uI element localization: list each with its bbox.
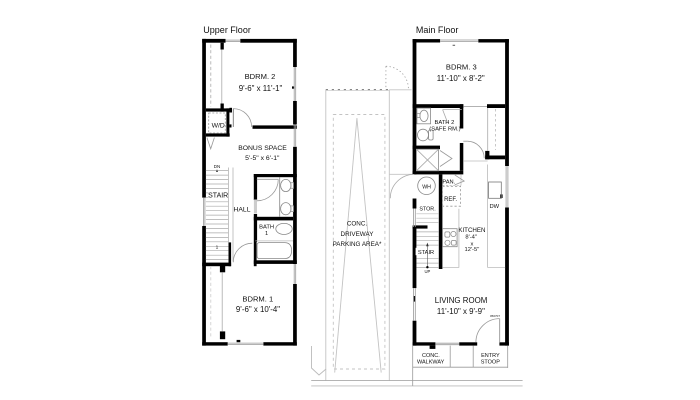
svg-text:W/D: W/D (212, 122, 225, 129)
svg-text:CONC.: CONC. (422, 353, 440, 359)
svg-text:DN: DN (214, 164, 221, 169)
svg-text:050707: 050707 (490, 314, 500, 318)
svg-text:Upper Floor: Upper Floor (203, 25, 251, 35)
svg-text:DRIVEWAY: DRIVEWAY (341, 231, 375, 238)
svg-text:PARKING AREA*: PARKING AREA* (333, 241, 382, 248)
svg-text:LIVING ROOM: LIVING ROOM (435, 296, 488, 305)
svg-text:REF.: REF. (444, 197, 457, 203)
svg-text:BATH 2: BATH 2 (434, 120, 454, 126)
svg-text:HALL: HALL (233, 207, 250, 214)
svg-text:PAN.: PAN. (442, 179, 455, 185)
svg-text:1: 1 (265, 231, 268, 237)
svg-text:11'-10" x 9'-9": 11'-10" x 9'-9" (437, 307, 485, 316)
svg-text:ENTRY: ENTRY (481, 353, 500, 359)
svg-text:BONUS SPACE: BONUS SPACE (238, 145, 287, 152)
svg-text:11'-10" x 8'-2": 11'-10" x 8'-2" (437, 74, 485, 83)
svg-text:9'-6" x 10'-4": 9'-6" x 10'-4" (236, 305, 280, 314)
svg-text:UP: UP (424, 269, 430, 274)
svg-text:STAIR: STAIR (418, 250, 434, 256)
svg-text:BDRM. 1: BDRM. 1 (242, 294, 273, 303)
svg-text:DW: DW (489, 204, 499, 210)
svg-text:8'-4": 8'-4" (465, 235, 477, 241)
svg-text:WALKWAY: WALKWAY (417, 360, 445, 366)
svg-text:STOOP: STOOP (481, 360, 500, 366)
svg-text:CONC.: CONC. (347, 221, 368, 228)
svg-text:BDRM. 2: BDRM. 2 (245, 72, 276, 81)
svg-text:9'-6" x 11'-1": 9'-6" x 11'-1" (239, 84, 283, 93)
svg-text:12'-5": 12'-5" (465, 247, 480, 253)
svg-text:KITCHEN: KITCHEN (458, 227, 485, 234)
svg-text:WH: WH (422, 184, 431, 190)
svg-text:5'-5" x 6'-1": 5'-5" x 6'-1" (245, 155, 280, 162)
svg-text:BATH: BATH (259, 225, 274, 231)
svg-text:BDRM. 3: BDRM. 3 (446, 62, 477, 71)
svg-text:STOR.: STOR. (419, 207, 435, 213)
svg-text:Main Floor: Main Floor (416, 25, 459, 35)
svg-text:(SAFE RM.): (SAFE RM.) (429, 127, 460, 133)
svg-text:STAIR: STAIR (208, 192, 228, 199)
svg-text:1: 1 (216, 244, 219, 250)
